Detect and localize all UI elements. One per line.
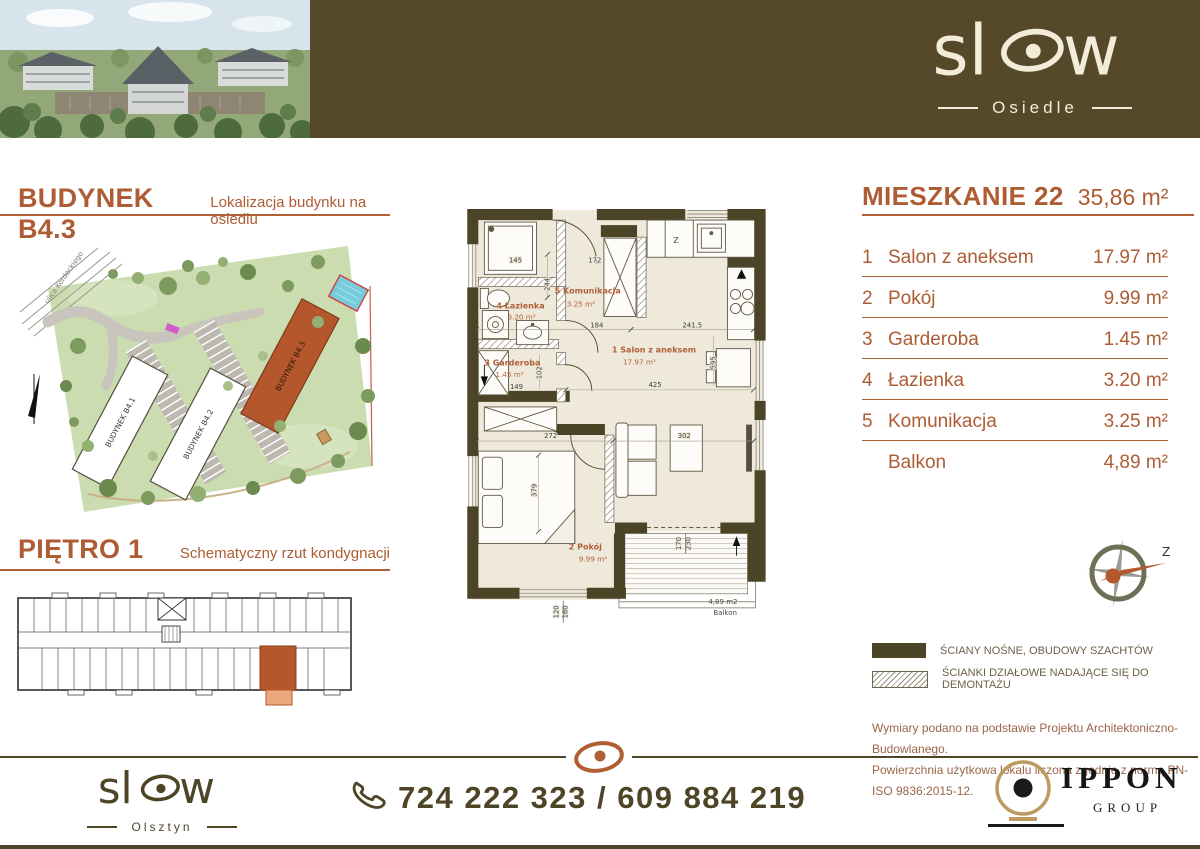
room-area: 4,89 m² — [1104, 452, 1168, 474]
apartment-title: MIESZKANIE 22 — [862, 181, 1064, 212]
header-band: sl w Osiedle — [0, 0, 1200, 138]
room-area: 3.25 m² — [1104, 411, 1168, 433]
room-area: 9.99 m² — [1104, 288, 1168, 310]
phone-icon — [348, 776, 386, 820]
table-row: 3 Garderoba 1.45 m² — [862, 318, 1168, 359]
footer-eye-icon — [569, 736, 629, 778]
table-row: 4 Łazienka 3.20 m² — [862, 359, 1168, 400]
svg-text:425: 425 — [649, 381, 662, 389]
floor-title-rule — [0, 569, 390, 571]
table-row: 2 Pokój 9.99 m² — [862, 277, 1168, 318]
svg-text:595: 595 — [709, 356, 717, 369]
svg-text:102: 102 — [536, 366, 544, 379]
partner-name: IPPON — [1061, 760, 1182, 796]
logo-subtitle: Osiedle — [992, 98, 1078, 118]
footer-brand-logo: sl w Olsztyn — [72, 764, 252, 834]
svg-text:172: 172 — [588, 256, 601, 264]
room-number: 3 — [862, 329, 888, 351]
room-area: 17.97 m² — [1093, 247, 1168, 269]
room-area: 3.20 m² — [1104, 370, 1168, 392]
building-title-rule — [0, 214, 390, 216]
room-name: Garderoba — [888, 329, 1104, 351]
solid-wall-label: ŚCIANY NOŚNE, OBUDOWY SZACHTÓW — [940, 645, 1153, 657]
partner-logo: IPPON GROUP — [985, 758, 1197, 840]
disclaimer-line-1: Wymiary podano na podstawie Projektu Arc… — [872, 718, 1197, 760]
legend-row-solid: ŚCIANY NOŚNE, OBUDOWY SZACHTÓW — [872, 643, 1197, 658]
svg-text:170: 170 — [675, 537, 683, 550]
svg-text:145: 145 — [509, 256, 522, 264]
area-garderoba: 1.45 m² — [495, 370, 523, 379]
svg-text:241.5: 241.5 — [683, 322, 703, 330]
footer-logo-dash-right — [207, 826, 237, 828]
footer-logo-dash-left — [87, 826, 117, 828]
area-salon: 17.97 m² — [623, 358, 656, 367]
room-name: Pokój — [888, 288, 1104, 310]
room-name: Komunikacja — [888, 411, 1104, 433]
area-lazienka: 3.20 m² — [507, 313, 535, 322]
footer-logo-subtitle: Olsztyn — [131, 820, 192, 834]
compass-direction-label: Z — [1162, 545, 1170, 559]
hatched-wall-swatch — [872, 671, 928, 688]
room-name: Balkon — [888, 452, 1104, 474]
svg-text:272: 272 — [544, 432, 557, 440]
room-number: 2 — [862, 288, 888, 310]
area-komunikacja: 3.25 m² — [567, 299, 595, 308]
schematic-highlighted-unit — [260, 646, 296, 690]
site-map: BUDYNEK B4.1 BUDYNEK B4.2 BUDYNEK B4.3 — [18, 226, 390, 522]
aerial-render-photo — [0, 0, 310, 138]
table-row: 1 Salon z aneksem 17.97 m² — [862, 236, 1168, 277]
svg-text:244: 244 — [544, 278, 552, 291]
brand-logo: sl w Osiedle — [905, 12, 1165, 118]
ippon-mark-icon — [985, 758, 1065, 836]
floor-title: PIĘTRO 1 — [18, 534, 143, 565]
eye-icon — [1001, 28, 1063, 73]
legend: ŚCIANY NOŚNE, OBUDOWY SZACHTÓW ŚCIANKI D… — [872, 643, 1197, 700]
phone-contact: 724 222 323 / 609 884 219 — [348, 776, 806, 820]
label-lazienka: 4 Łazienka — [496, 301, 544, 310]
floor-subtitle: Schematyczny rzut kondygnacji — [180, 545, 390, 562]
label-pokoj: 2 Pokój — [569, 542, 602, 552]
footer-logo-text-left: sl — [98, 764, 133, 814]
svg-text:379: 379 — [531, 484, 539, 497]
footer-eye-glyph — [141, 774, 180, 802]
flyer-page: sl w Osiedle BUDYNEK B4.3 Lokalizacja bu… — [0, 0, 1200, 849]
logo-text-left: sl — [932, 12, 988, 92]
svg-text:302: 302 — [678, 432, 691, 440]
map-north-arrow — [28, 374, 40, 424]
floor-schematic — [12, 582, 358, 716]
phone-number: 724 222 323 / 609 884 219 — [398, 780, 806, 816]
footer-logo-subtitle-row: Olsztyn — [72, 820, 252, 834]
area-pokoj: 9.99 m² — [579, 555, 607, 564]
floor-section-header: PIĘTRO 1 Schematyczny rzut kondygnacji — [18, 534, 390, 565]
footer-logo-text-right: w — [179, 764, 215, 814]
footer-divider-left — [0, 756, 566, 758]
solid-wall-swatch — [872, 643, 926, 658]
svg-text:184: 184 — [590, 322, 603, 330]
label-komunikacja: 5 Komunikacja — [555, 286, 621, 295]
building-subtitle: Lokalizacja budynku na osiedlu — [210, 194, 398, 228]
logo-text-right: w — [1063, 12, 1120, 92]
apartment-total-area: 35,86 m² — [1078, 184, 1169, 211]
slow-logo: sl w — [915, 12, 1155, 92]
kitchen-appliance-label: Z — [673, 236, 679, 245]
room-number: 4 — [862, 370, 888, 392]
room-area: 1.45 m² — [1104, 329, 1168, 351]
logo-dash-left — [938, 107, 978, 109]
label-salon: 1 Salon z aneksem — [612, 346, 696, 355]
room-number: 1 — [862, 247, 888, 269]
apartment-title-rule — [862, 214, 1194, 216]
logo-subtitle-row: Osiedle — [905, 98, 1165, 118]
svg-text:149: 149 — [510, 383, 523, 391]
partner-subtitle: GROUP — [1093, 800, 1162, 816]
label-garderoba: 3 Garderoba — [484, 359, 540, 368]
balcony-area-label: 4,89 m2 — [708, 597, 737, 606]
room-table: 1 Salon z aneksem 17.97 m² 2 Pokój 9.99 … — [862, 236, 1168, 481]
room-name: Salon z aneksem — [888, 247, 1093, 269]
hatched-wall-label: ŚCIANKI DZIAŁOWE NADAJĄCE SIĘ DO DEMONTA… — [942, 667, 1197, 691]
svg-text:120: 120 — [553, 605, 561, 618]
bottom-border — [0, 845, 1200, 849]
logo-dash-right — [1092, 107, 1132, 109]
table-row-balcony: Balkon 4,89 m² — [862, 441, 1168, 481]
footer-slow-logo: sl w — [87, 764, 237, 814]
table-row: 5 Komunikacja 3.25 m² — [862, 400, 1168, 441]
apartment-header: MIESZKANIE 22 35,86 m² — [862, 181, 1192, 212]
apartment-floorplan: 145 172 244 184 241.5 102 149 425 272 30… — [464, 202, 796, 644]
room-number: 5 — [862, 411, 888, 433]
schematic-highlighted-balcony — [266, 690, 292, 705]
room-name: Łazienka — [888, 370, 1104, 392]
compass-icon: Z — [1086, 536, 1174, 610]
legend-row-hatched: ŚCIANKI DZIAŁOWE NADAJĄCE SIĘ DO DEMONTA… — [872, 667, 1197, 691]
balcony-name-label: Balkon — [713, 608, 737, 617]
